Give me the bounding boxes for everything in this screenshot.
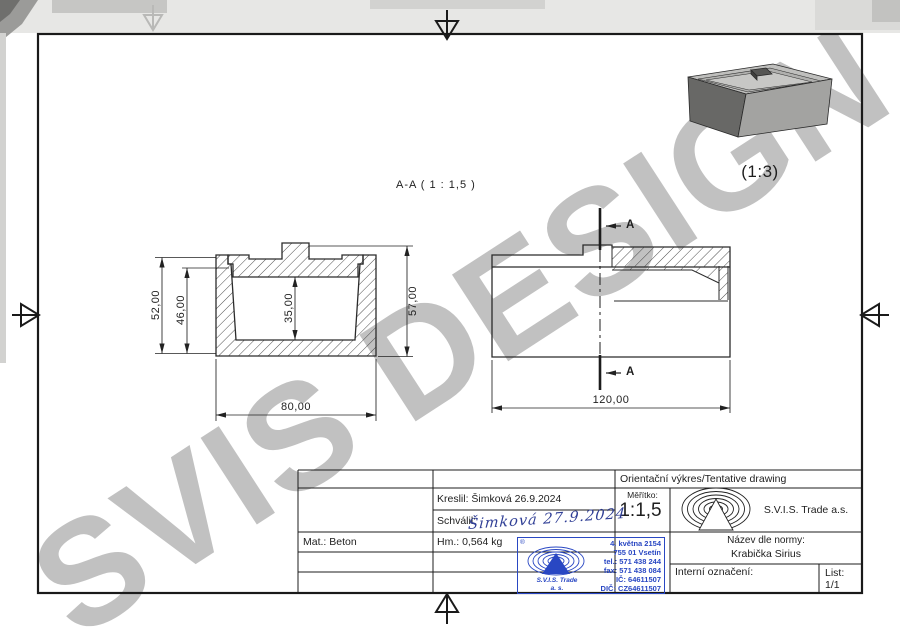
dim-label-35: 35,00: [283, 278, 295, 338]
registration-mark-right: [861, 304, 889, 326]
stamp-address-line: tel.: 571 438 244: [601, 557, 661, 566]
stamp-company-line1: S.V.I.S. Trade: [526, 577, 588, 584]
standard-name-label: Název dle normy:: [672, 535, 860, 546]
internal-designation-label: Interní označení:: [675, 566, 753, 578]
lid-section: [228, 243, 363, 277]
stamp-company-line2: a. s.: [526, 585, 588, 592]
cut-label-top: A: [626, 219, 634, 231]
company-name: S.V.I.S. Trade a.s.: [752, 504, 860, 516]
stamp-address-line: DIČ: CZ64611507: [601, 584, 661, 593]
scanned-technical-drawing: SVIS DESIGN: [0, 0, 900, 629]
material: Mat.: Beton: [303, 536, 357, 548]
weight: Hm.: 0,564 kg: [437, 536, 502, 548]
standard-name-value: Krabička Sirius: [672, 548, 860, 560]
stamp-address: 4. května 2154 755 01 Vsetín tel.: 571 4…: [601, 539, 661, 593]
render-scale-label: (1:3): [715, 162, 805, 182]
scale-label: Měřítko:: [615, 490, 670, 500]
section-view: [216, 243, 376, 356]
drawn-by: Kreslil: Šimková 26.9.2024: [437, 493, 561, 505]
stamp-address-line: 4. května 2154: [601, 539, 661, 548]
registration-mark-left: [12, 304, 39, 326]
dim-label-46: 46,00: [175, 280, 187, 340]
stamp-address-line: fax: 571 438 084: [601, 566, 661, 575]
dim-label-57: 57,00: [407, 271, 419, 331]
stamp-address-line: 755 01 Vsetín: [601, 548, 661, 557]
cutting-plane-line: [600, 208, 621, 390]
registration-mark-bottom: [436, 594, 458, 624]
dim-label-80: 80,00: [261, 401, 331, 413]
cut-label-bottom: A: [626, 366, 634, 378]
tentative-drawing-label: Orientační výkres/Tentative drawing: [620, 473, 786, 485]
sheet-value: 1/1: [825, 579, 840, 591]
company-stamp: ® S.V.I.S. Trade a. s. 4. května 2154 75…: [517, 537, 665, 594]
dim-label-120: 120,00: [576, 394, 646, 406]
section-title: A-A ( 1 : 1,5 ): [396, 179, 476, 191]
company-logo: [682, 488, 750, 530]
dim-label-52: 52,00: [150, 275, 162, 335]
side-view: [492, 245, 730, 357]
sheet-label: List:: [825, 567, 844, 579]
stamp-logo-icon: [522, 543, 592, 581]
stamp-address-line: IČ: 64611507: [601, 575, 661, 584]
render-3d: [688, 64, 832, 137]
